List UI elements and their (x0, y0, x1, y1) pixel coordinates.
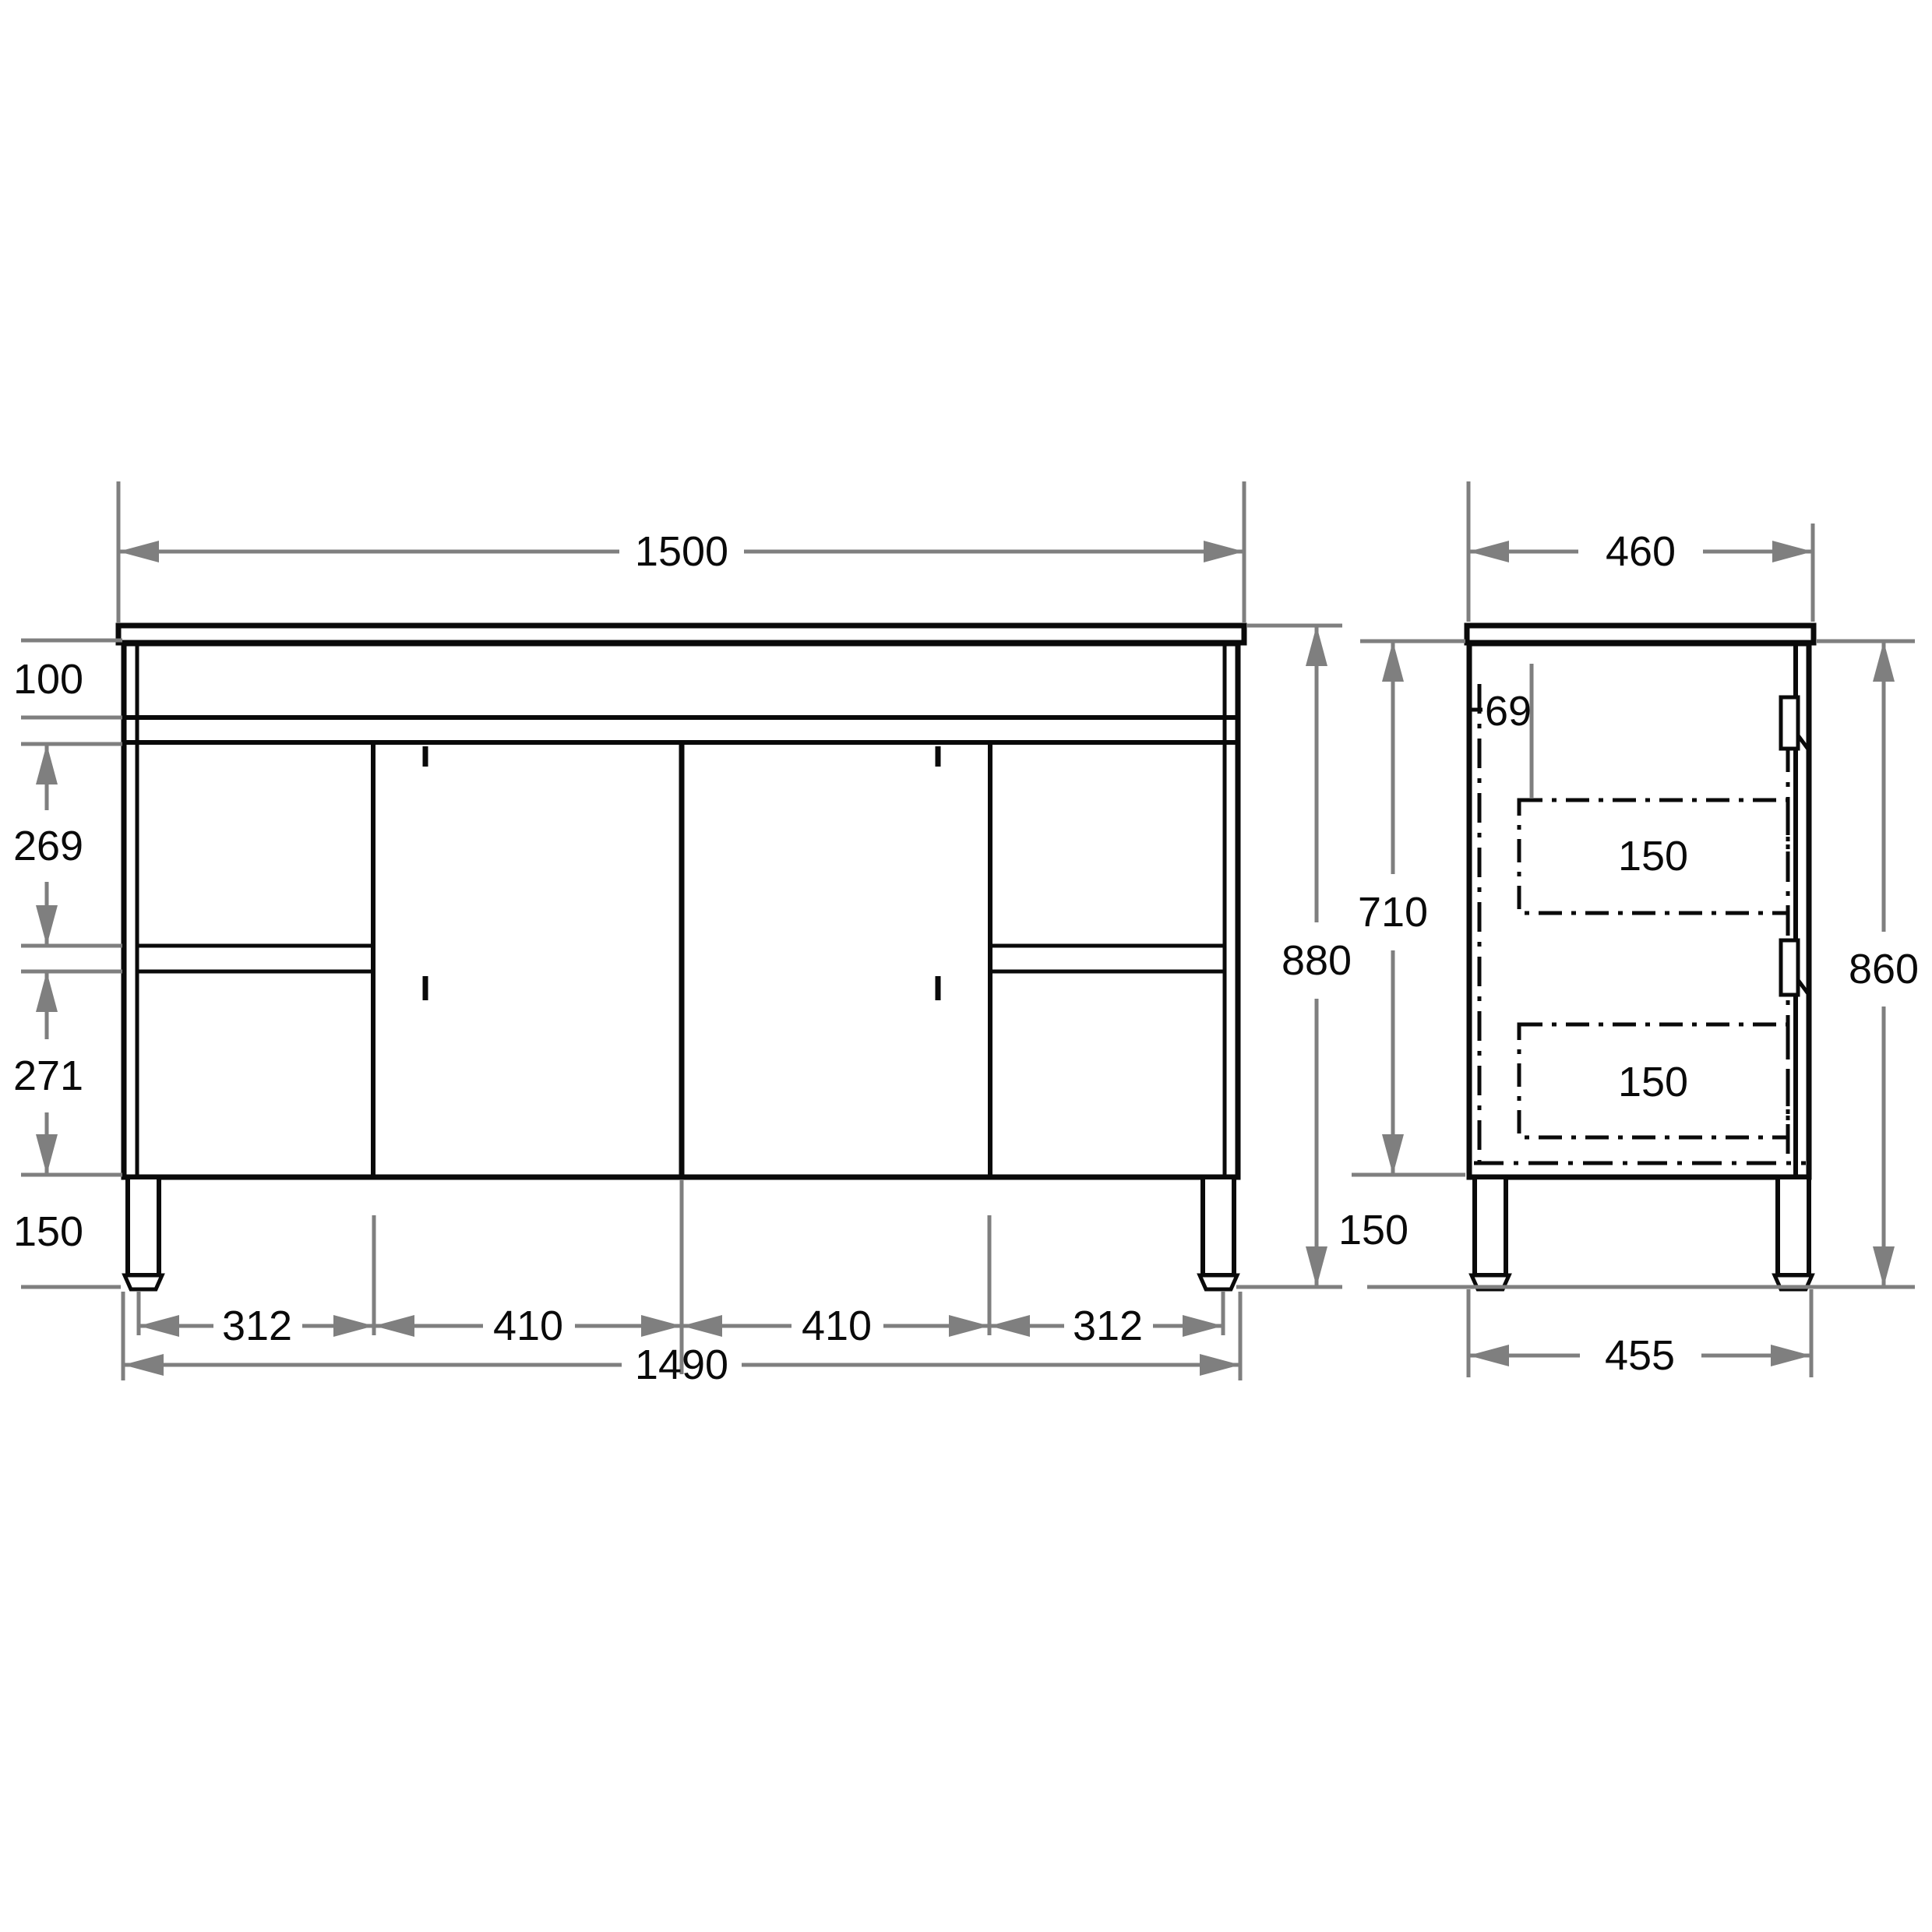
arrowhead-left (139, 1315, 179, 1337)
technical-drawing-page: 1500 100 269 271 150 880 (0, 0, 1932, 1932)
arrowhead-right (1200, 1354, 1240, 1376)
arrowhead-right (949, 1315, 989, 1337)
front-right-leg (1203, 1177, 1234, 1275)
side-countertop (1467, 626, 1814, 643)
dim-front-seg-1: 312 (222, 1303, 292, 1349)
arrowhead-left (123, 1354, 164, 1376)
arrowhead-down (1873, 1246, 1895, 1287)
dim-front-counter-width: 1500 (635, 528, 728, 575)
side-door-handle (1781, 697, 1798, 749)
arrowhead-left (989, 1315, 1030, 1337)
dim-front-cabinet-width: 1490 (635, 1341, 728, 1388)
dim-side-height-under-counter: 860 (1849, 946, 1919, 992)
front-left-leg-foot (125, 1275, 162, 1289)
dim-front-seg-2: 410 (493, 1303, 563, 1349)
dim-front-seg-4: 312 (1073, 1303, 1143, 1349)
dim-front-upper-drawer: 269 (13, 823, 83, 869)
arrowhead-right (333, 1315, 374, 1337)
arrowhead-right (1204, 541, 1244, 562)
front-left-leg (128, 1177, 159, 1275)
dim-front-leg-height: 150 (13, 1208, 83, 1255)
dim-side-drawer-box-upper: 150 (1618, 833, 1688, 880)
vanity-dimension-drawing: 1500 100 269 271 150 880 (0, 0, 1932, 1932)
dim-side-body-height: 710 (1358, 889, 1428, 936)
arrowhead-left (682, 1315, 722, 1337)
dim-front-overall-height: 880 (1282, 937, 1352, 984)
side-drawer-handle (1781, 940, 1798, 995)
arrowhead-down (1382, 1134, 1404, 1175)
arrowhead-up (1873, 641, 1895, 682)
arrowhead-right (1772, 541, 1813, 562)
arrowhead-up (1382, 641, 1404, 682)
dim-side-drawer-box-lower: 150 (1618, 1059, 1688, 1105)
arrowhead-left (118, 541, 159, 562)
arrowhead-up (36, 971, 58, 1012)
arrowhead-left (374, 1315, 414, 1337)
arrowhead-up (1306, 626, 1327, 666)
side-front-leg (1778, 1177, 1809, 1275)
arrowhead-down (36, 1134, 58, 1175)
arrowhead-up (36, 744, 58, 784)
dim-front-top-band: 100 (13, 656, 83, 703)
arrowhead-left (1468, 541, 1509, 562)
arrowhead-down (1306, 1246, 1327, 1287)
dim-side-back-clearance: 69 (1485, 688, 1532, 735)
front-right-leg-foot (1200, 1275, 1237, 1289)
dim-side-leg-span: 455 (1605, 1332, 1675, 1379)
arrowhead-right (641, 1315, 682, 1337)
side-back-leg (1475, 1177, 1506, 1275)
dim-front-lower-drawer: 271 (13, 1052, 83, 1099)
arrowhead-left (1468, 1345, 1509, 1366)
dim-front-seg-3: 410 (802, 1303, 872, 1349)
dim-side-leg-height: 150 (1338, 1207, 1408, 1253)
dim-side-counter-depth: 460 (1606, 528, 1676, 575)
front-countertop (118, 626, 1244, 643)
arrowhead-right (1771, 1345, 1811, 1366)
arrowhead-right (1183, 1315, 1223, 1337)
arrowhead-down (36, 905, 58, 946)
